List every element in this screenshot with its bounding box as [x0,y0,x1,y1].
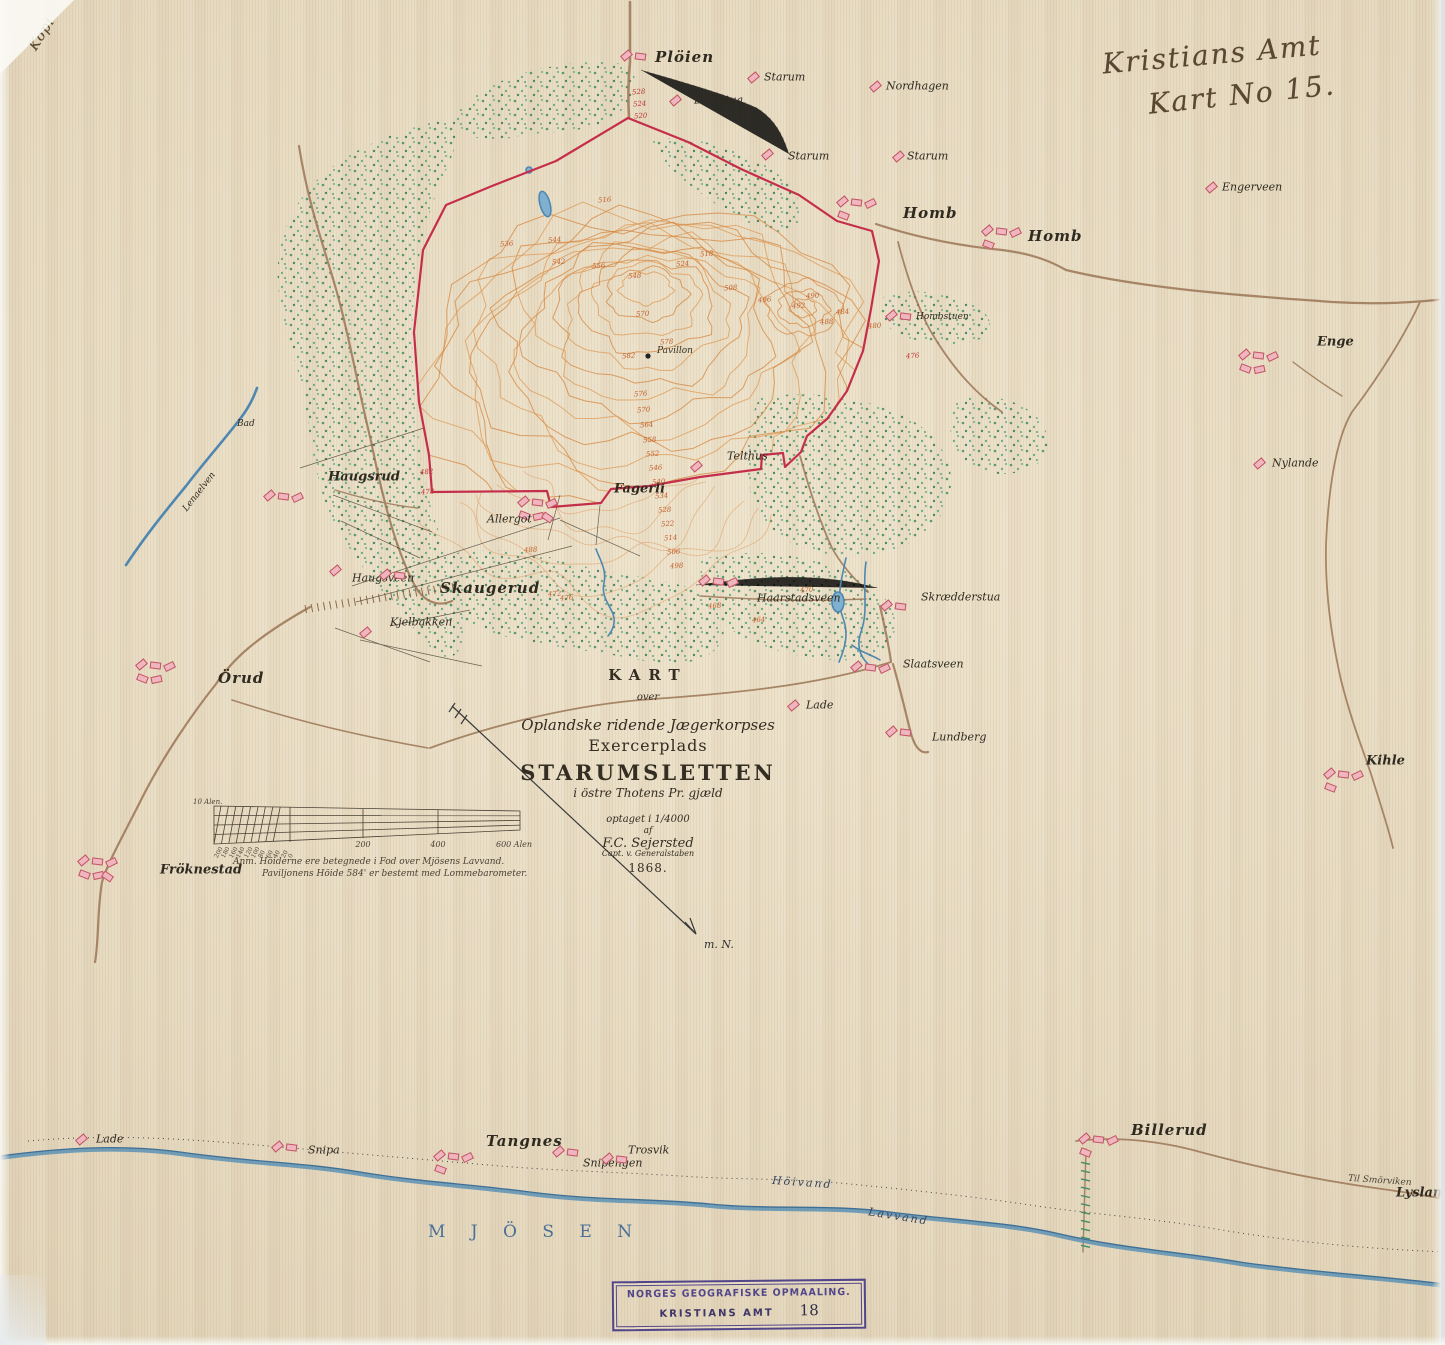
elevation-number: 476 [906,352,920,361]
building-mark [394,571,406,579]
title-exercerplads: Exercerplads [588,736,707,755]
elevation-number: 488 [820,318,834,327]
place-label: Enge [1317,335,1354,350]
elevation-number: 496 [758,296,772,305]
elevation-number: 468 [708,602,722,611]
place-label: Kjelbakken [390,616,452,629]
elevation-number: 564 [640,421,654,430]
elevation-number: 542 [552,258,566,267]
elevation-number: 570 [636,310,650,319]
elevation-number: 514 [664,534,678,543]
place-label: Lysland [1396,1186,1445,1201]
building-mark [865,663,877,671]
elevation-number: 570 [637,406,651,415]
building-mark [616,1155,628,1163]
scale-main-label: 600 Alen [496,840,532,849]
building-mark [713,577,725,585]
place-label: Bad [237,419,255,429]
place-label: Lade [96,1133,123,1146]
elevation-number: 540 [652,478,666,487]
building-mark [1253,351,1265,359]
place-label: Snipa [308,1144,340,1157]
elevation-number: 516 [598,196,612,205]
place-label: Örud [218,669,264,687]
title-name: STARUMSLETTEN [520,760,776,785]
place-label: Haugsrud [328,470,400,485]
elevation-number: 544 [548,236,562,245]
place-label: Starum [764,71,805,84]
place-label: Homb [1028,227,1083,245]
place-label: Starum [788,150,829,163]
building-mark [1338,770,1350,778]
elevation-number: 522 [661,520,675,529]
pavilion-point [645,353,650,358]
building-mark [92,857,104,865]
scale-main-label: 200 [355,840,370,849]
elevation-number: 524 [633,100,647,109]
place-label: Haarstadsveen [757,592,841,605]
note-line1: Anm. Höiderne ere betegnede i Fod over M… [233,857,504,867]
elevation-number: 528 [632,88,646,97]
place-label: Engerveen [1222,181,1282,194]
building-mark [895,602,907,610]
archive-stamp: NORGES GEOGRAFISKE OPMAALING. KRISTIANS … [612,1279,867,1332]
stamp-line2: KRISTIANS AMT [659,1308,773,1320]
stamp-number: 18 [800,1301,819,1319]
place-label: Nylande [1272,457,1319,470]
title-corps: Oplandske ridende Jægerkorpses [521,716,775,734]
elevation-number: 534 [655,492,669,501]
place-label: Skrædderstua [921,591,1000,604]
elevation-number: 548 [628,272,642,281]
elevation-number: 472 [548,590,562,599]
place-label: Trosvik [628,1144,669,1157]
place-label: Hombstuen [916,312,969,322]
building-mark [532,498,544,506]
elevation-number: 552 [646,450,660,459]
place-label: Plöien [655,48,714,66]
elevation-number: 492 [792,302,806,311]
building-mark [1093,1135,1105,1143]
map-sheet: Kopi Kristians Amt Kart No 15. KART over… [0,0,1445,1345]
map-canvas [0,0,1445,1345]
scale-bar [214,806,520,844]
place-label: Skaugerud [440,579,540,597]
building-mark [448,1152,460,1160]
place-label: Telthus [727,450,768,463]
elevation-number: 518 [700,250,714,259]
building-mark [635,52,647,60]
building-mark [150,661,162,669]
elevation-number: 556 [592,262,606,271]
place-label: Fröknestad [160,863,242,878]
elevation-number: 528 [658,506,672,515]
elevation-number: 508 [724,284,738,293]
stamp-line1: NORGES GEOGRAFISKE OPMAALING. [614,1286,864,1300]
title-surveyed: optaget i 1/4000 [606,814,689,825]
building-mark [996,227,1008,235]
place-label: Starum [907,150,948,163]
place-label: Allergot [487,513,532,526]
elevation-number: 576 [634,390,648,399]
elevation-number: 536 [500,240,514,249]
elevation-number: 558 [643,436,657,445]
title-af: af [644,826,653,836]
place-label: Nordhagen [886,80,949,93]
elevation-number: 478 [421,488,435,497]
pavilion-label: Pavillon [657,346,693,356]
elevation-number: 470 [800,586,814,595]
elevation-number: 506 [667,548,681,557]
elevation-number: 582 [622,352,636,361]
title-parish: i östre Thotens Pr. gjæld [573,786,722,800]
building-mark [278,492,290,500]
building-mark [567,1148,579,1156]
place-label: Tangnes [486,1132,563,1150]
title-kart: KART [608,666,687,684]
elevation-number: 578 [660,338,674,347]
scale-unit-label: 10 Alen. [193,798,222,806]
elevation-number: 546 [649,464,663,473]
elevation-number: 476 [560,594,574,603]
building-mark [900,312,912,320]
magnetic-north-label: m. N. [704,938,734,951]
place-label: Slaatsveen [903,658,964,671]
title-year: 1868. [628,861,667,875]
note-line2: Paviljonens Höide 584' er bestemt med Lo… [262,869,527,879]
place-label: Kihle [1366,754,1405,769]
elevation-number: 484 [836,308,850,317]
elevation-number: 480 [868,322,882,331]
building-mark [286,1143,298,1151]
place-label: Homb [903,204,958,222]
elevation-number: 488 [524,546,538,555]
place-label: Billerud [1131,1121,1208,1139]
place-label: Lade [806,699,833,712]
title-over: over [637,692,659,703]
place-label: Lundberg [932,731,986,744]
elevation-number: 520 [634,112,648,121]
building-mark [851,198,863,206]
elevation-number: 464 [752,616,766,625]
scale-main-label: 400 [430,840,445,849]
building-mark [900,728,912,736]
lake-name: M J Ö S E N [428,1222,642,1242]
place-label: Dölestua [694,94,743,107]
elevation-number: 482 [420,468,434,477]
title-role: Capt. v. Generalstaben [602,849,694,858]
elevation-number: 490 [806,292,820,301]
elevation-number: 524 [676,260,690,269]
elevation-number: 498 [670,562,684,571]
